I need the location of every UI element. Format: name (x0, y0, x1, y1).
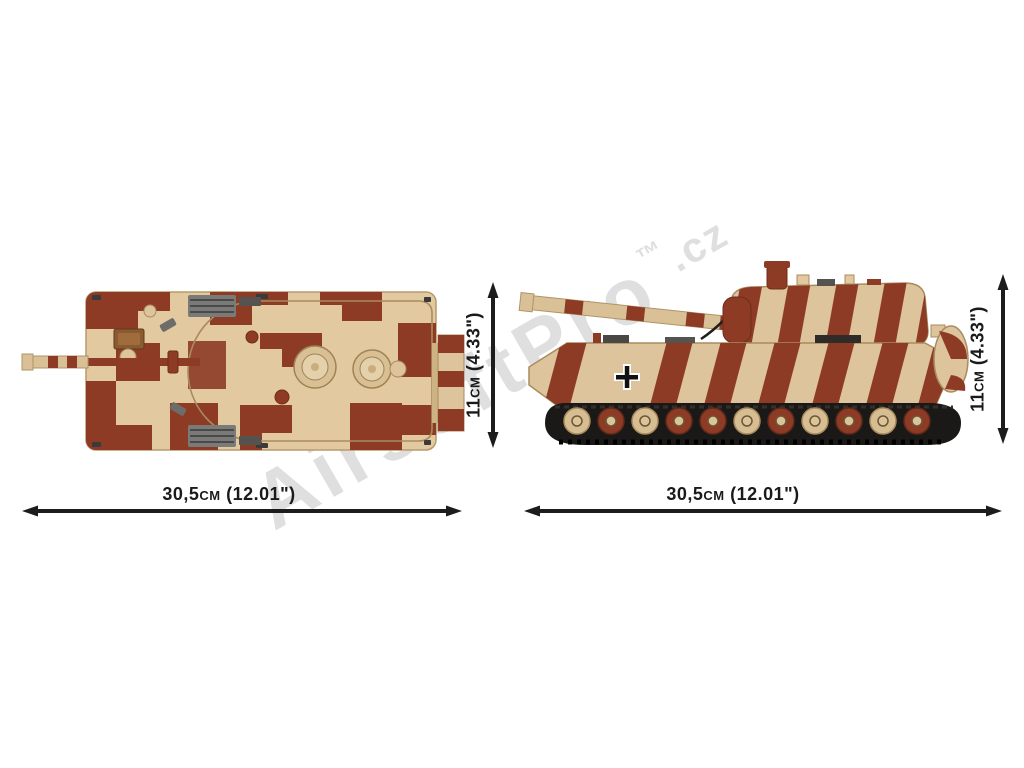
side-view-width-label: 30,5cm (12.01") (623, 484, 843, 505)
tracks (545, 403, 961, 445)
road-wheels (564, 408, 930, 434)
rear-box-top (432, 335, 464, 431)
side-view-height-label: 11cm (4.33") (968, 249, 989, 469)
top-view-height-arrow (484, 280, 502, 450)
gun-mantlet (723, 297, 751, 343)
side-view-height-arrow (994, 272, 1012, 446)
product-dimension-image: AirsoftPro™.cz (0, 0, 1024, 768)
gun-barrel-side (519, 293, 745, 334)
cupola (767, 265, 787, 289)
turret-side (723, 261, 949, 347)
tank-side-view (515, 255, 970, 450)
hull-side (515, 333, 961, 409)
tank-top-view (20, 285, 470, 457)
top-view-height-label: 11cm (4.33") (464, 255, 485, 475)
top-view-width-label: 30,5cm (12.01") (119, 484, 339, 505)
